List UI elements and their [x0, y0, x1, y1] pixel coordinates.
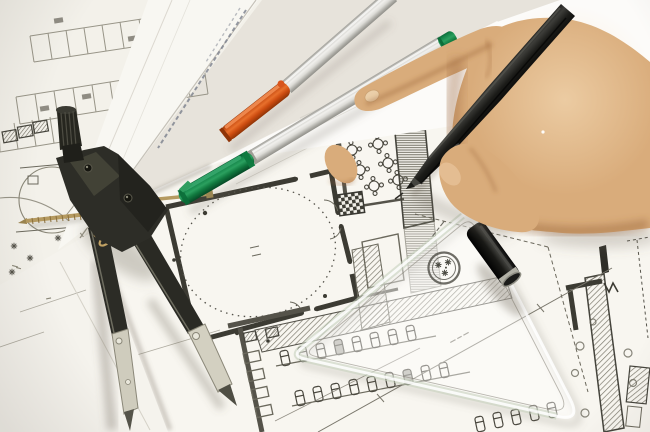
photo-stage: site plan with parking rows — [0, 0, 650, 432]
photo-scene: site plan with parking rows — [0, 0, 650, 432]
vignette — [0, 0, 650, 432]
